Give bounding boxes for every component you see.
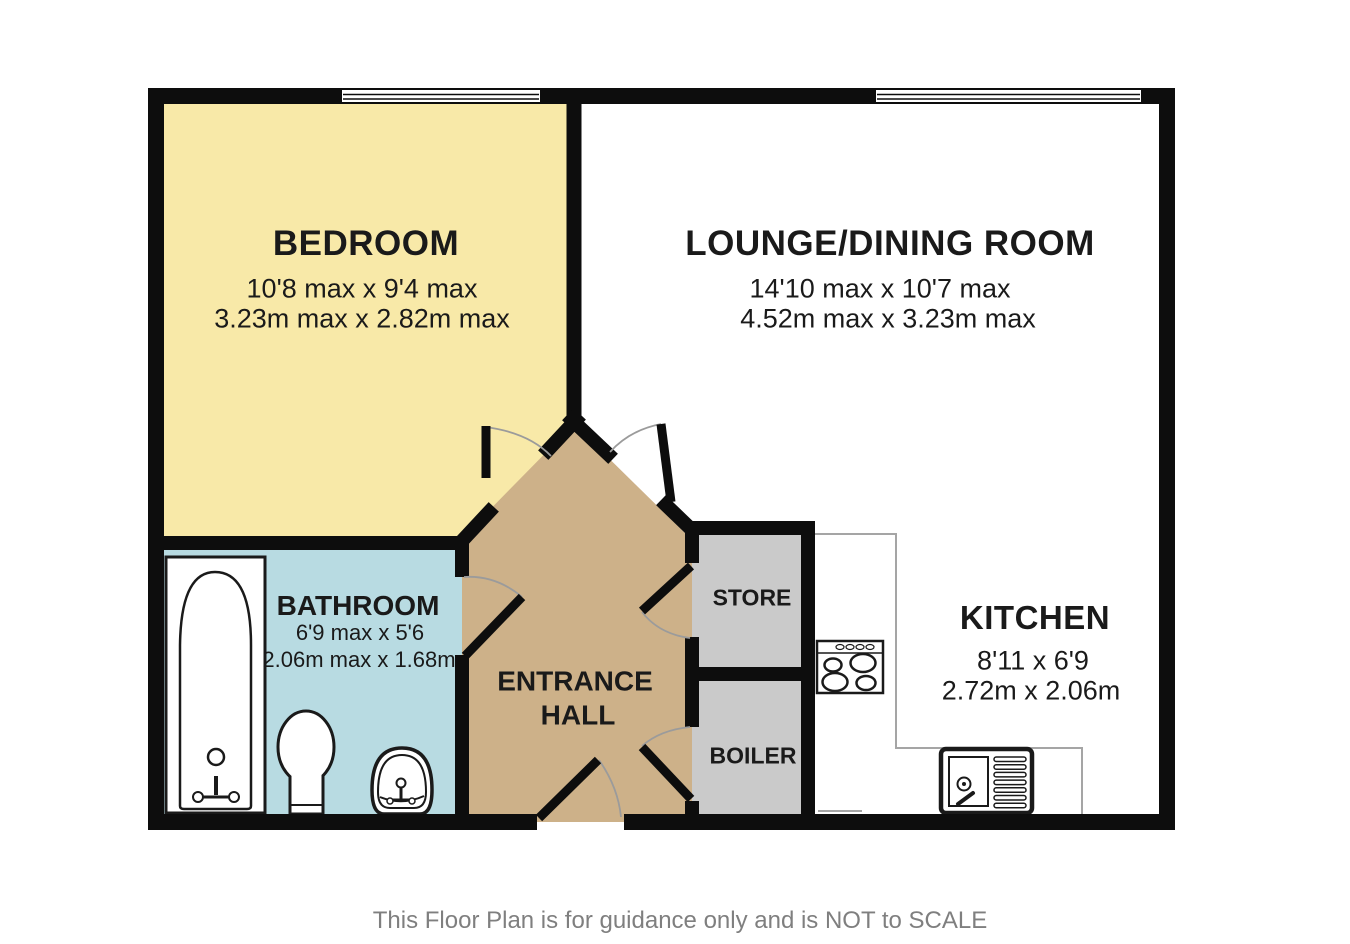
kitchen-dims-metric: 2.72m x 2.06m [942, 676, 1121, 707]
bedroom-dims-metric: 3.23m max x 2.82m max [214, 304, 510, 335]
bathroom-dims-imperial: 6'9 max x 5'6 [296, 620, 424, 646]
window-lounge [875, 89, 1142, 103]
hob [817, 641, 883, 693]
bathtub [166, 557, 265, 813]
kitchen-dims-imperial: 8'11 x 6'9 [977, 646, 1089, 677]
bedroom-name: BEDROOM [273, 224, 459, 264]
scale-disclaimer: This Floor Plan is for guidance only and… [373, 907, 988, 935]
bathroom-name: BATHROOM [277, 590, 440, 622]
boiler-name: BOILER [710, 743, 797, 770]
kitchen-name: KITCHEN [960, 599, 1110, 637]
window-bedroom [341, 89, 541, 103]
bathroom-dims-metric: 2.06m max x 1.68m [262, 647, 455, 673]
store-name: STORE [713, 585, 792, 612]
entrance-hall-name-line2: HALL [541, 698, 616, 733]
entrance-hall-name-line1: ENTRANCE [497, 664, 653, 699]
kitchen-sink [941, 749, 1032, 813]
floor-plan: BEDROOM 10'8 max x 9'4 max 3.23m max x 2… [0, 0, 1350, 944]
lounge-dims-metric: 4.52m max x 3.23m max [740, 304, 1036, 335]
lounge-door-leaf [661, 424, 671, 502]
lounge-door-arc [610, 424, 661, 452]
lounge-name: LOUNGE/DINING ROOM [685, 224, 1095, 264]
floor-plan-drawing [0, 0, 1350, 944]
wash-basin [372, 748, 432, 814]
bedroom-dims-imperial: 10'8 max x 9'4 max [247, 274, 478, 305]
lounge-dims-imperial: 14'10 max x 10'7 max [750, 274, 1011, 305]
